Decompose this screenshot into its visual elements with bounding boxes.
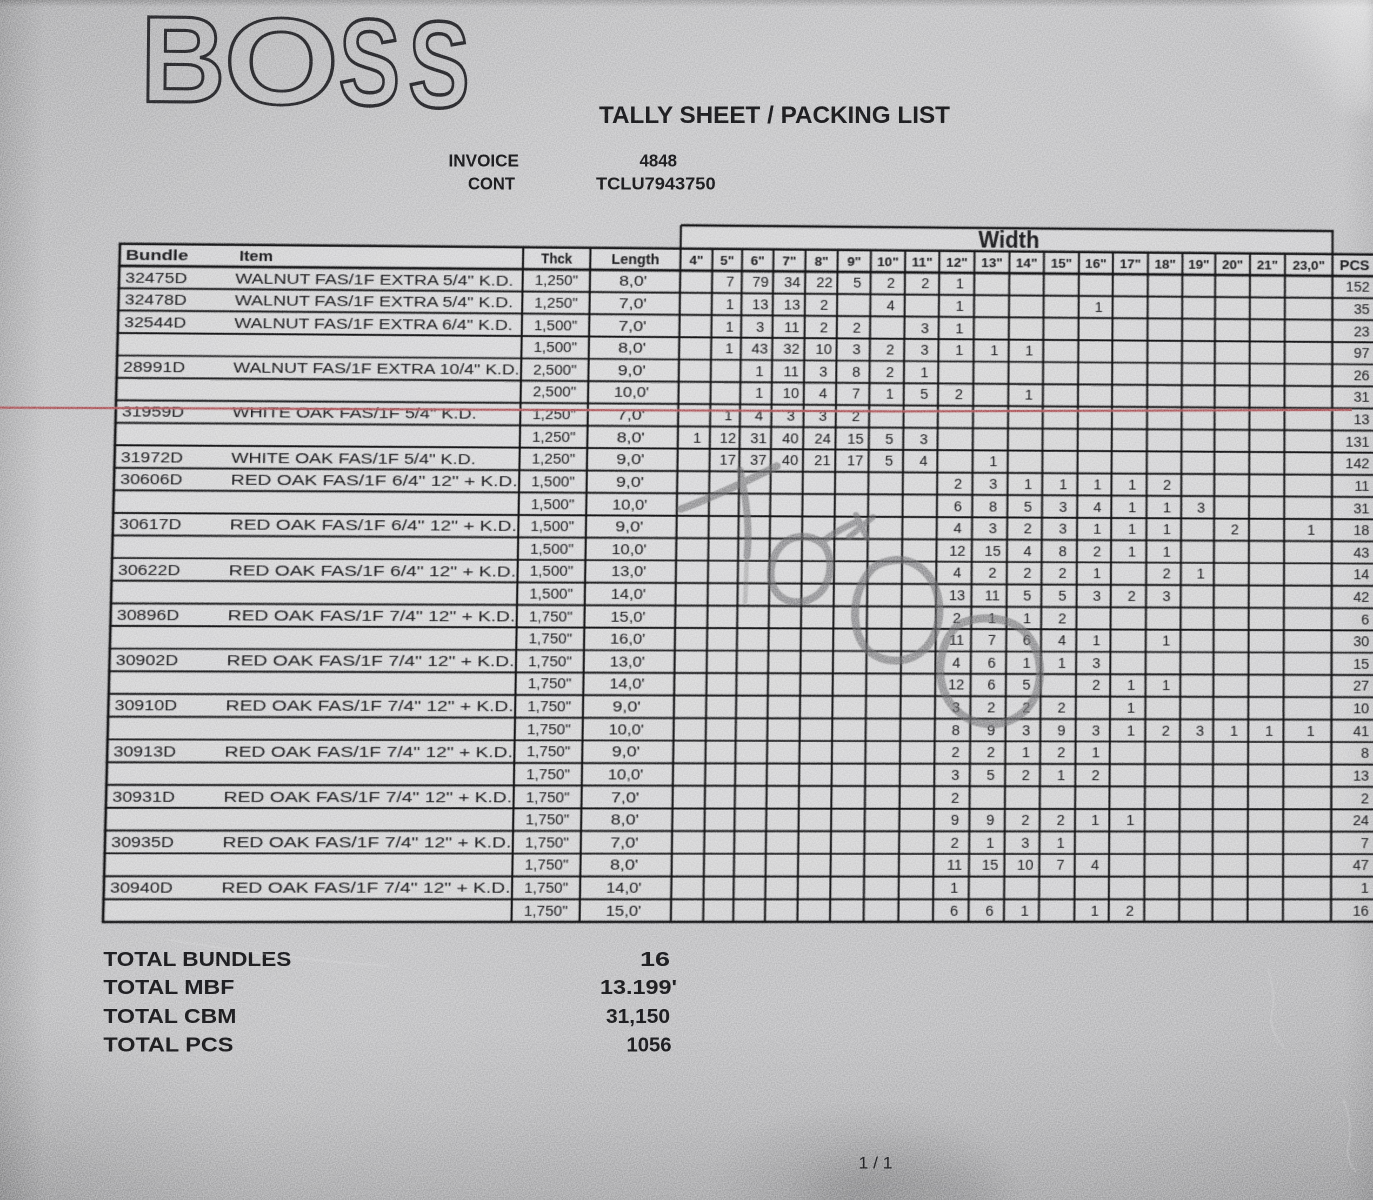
svg-text:10: 10 — [815, 342, 832, 358]
svg-text:17: 17 — [847, 454, 864, 470]
svg-text:2: 2 — [1126, 903, 1134, 919]
svg-text:24: 24 — [814, 431, 831, 447]
svg-text:TOTAL CBM: TOTAL CBM — [103, 1006, 236, 1028]
svg-text:2: 2 — [1058, 611, 1066, 627]
svg-text:7,0': 7,0' — [610, 835, 639, 851]
svg-text:30896D: 30896D — [117, 607, 180, 624]
svg-text:2,500": 2,500" — [533, 363, 577, 379]
svg-text:7,0': 7,0' — [618, 319, 646, 335]
svg-text:1: 1 — [1127, 678, 1135, 694]
svg-text:31: 31 — [1354, 390, 1370, 406]
svg-text:2: 2 — [1092, 678, 1100, 694]
svg-text:WHITE OAK FAS/1F 5/4" K.D.: WHITE OAK FAS/1F 5/4" K.D. — [232, 405, 477, 423]
svg-text:5: 5 — [987, 768, 995, 784]
svg-text:10,0': 10,0' — [608, 767, 644, 783]
svg-text:1,750": 1,750" — [527, 699, 571, 715]
svg-text:11: 11 — [947, 858, 962, 874]
svg-text:2: 2 — [1057, 813, 1065, 829]
svg-text:10,0': 10,0' — [612, 497, 648, 513]
svg-text:5: 5 — [1058, 589, 1066, 605]
svg-text:5: 5 — [885, 454, 893, 470]
svg-text:1,750": 1,750" — [525, 835, 569, 851]
svg-text:2: 2 — [1163, 478, 1171, 494]
svg-text:21: 21 — [814, 454, 831, 470]
svg-text:2: 2 — [1162, 723, 1170, 739]
svg-text:43: 43 — [1353, 546, 1369, 562]
svg-text:TOTAL PCS: TOTAL PCS — [103, 1034, 233, 1056]
svg-text:6: 6 — [985, 903, 993, 919]
svg-text:Bundle: Bundle — [126, 247, 189, 264]
svg-text:41: 41 — [1353, 724, 1369, 740]
svg-text:1: 1 — [755, 364, 763, 380]
svg-text:4: 4 — [1091, 858, 1099, 874]
svg-text:2: 2 — [1128, 589, 1136, 605]
svg-text:1,750": 1,750" — [526, 767, 570, 783]
svg-text:7: 7 — [1361, 836, 1369, 852]
svg-text:2: 2 — [1058, 566, 1066, 582]
svg-text:31: 31 — [1353, 501, 1369, 517]
svg-text:30910D: 30910D — [114, 697, 177, 714]
svg-text:10": 10" — [877, 254, 899, 269]
svg-text:3: 3 — [1196, 724, 1204, 740]
svg-text:4: 4 — [1093, 500, 1101, 516]
svg-text:7,0': 7,0' — [617, 408, 645, 424]
svg-text:5: 5 — [853, 276, 861, 292]
svg-text:8,0': 8,0' — [617, 430, 645, 446]
svg-text:2: 2 — [852, 409, 860, 425]
svg-text:1,250": 1,250" — [532, 407, 576, 423]
svg-text:8: 8 — [989, 499, 997, 515]
svg-text:3: 3 — [1092, 656, 1100, 672]
svg-text:31959D: 31959D — [122, 404, 185, 421]
svg-text:4: 4 — [887, 298, 895, 314]
svg-text:10: 10 — [1353, 701, 1369, 717]
svg-text:30940D: 30940D — [110, 880, 173, 897]
svg-text:4: 4 — [953, 521, 961, 537]
svg-text:Width: Width — [978, 227, 1039, 253]
svg-text:30902D: 30902D — [115, 652, 178, 669]
svg-text:32544D: 32544D — [124, 314, 186, 331]
svg-text:1: 1 — [725, 342, 733, 358]
svg-text:1: 1 — [1163, 545, 1171, 561]
svg-text:2: 2 — [1023, 566, 1031, 582]
svg-text:1,750": 1,750" — [524, 903, 568, 919]
svg-text:2: 2 — [953, 611, 961, 627]
svg-text:TALLY SHEET / PACKING LIST: TALLY SHEET / PACKING LIST — [599, 103, 951, 129]
svg-text:1: 1 — [1021, 903, 1029, 919]
svg-text:3: 3 — [920, 432, 928, 448]
svg-text:1: 1 — [1091, 813, 1099, 829]
svg-text:3: 3 — [852, 343, 860, 359]
svg-text:5: 5 — [885, 432, 893, 448]
svg-text:1: 1 — [1093, 522, 1101, 538]
svg-text:4: 4 — [952, 656, 960, 672]
svg-text:152: 152 — [1346, 280, 1370, 296]
svg-text:1,500": 1,500" — [530, 564, 574, 580]
svg-text:9: 9 — [951, 813, 959, 829]
svg-text:1: 1 — [1163, 500, 1171, 516]
svg-text:3: 3 — [786, 409, 794, 425]
svg-text:1: 1 — [1022, 746, 1030, 762]
svg-text:11: 11 — [1354, 479, 1369, 495]
svg-text:9: 9 — [987, 723, 995, 739]
svg-text:14,0': 14,0' — [611, 587, 647, 603]
svg-text:1: 1 — [1023, 611, 1031, 627]
svg-text:1: 1 — [1093, 567, 1101, 583]
svg-text:10: 10 — [1017, 858, 1034, 874]
svg-text:3: 3 — [1163, 589, 1171, 605]
svg-text:18": 18" — [1155, 257, 1176, 272]
svg-text:1: 1 — [1361, 881, 1369, 897]
svg-text:4848: 4848 — [640, 151, 678, 171]
svg-text:5: 5 — [1022, 678, 1030, 694]
svg-text:TOTAL BUNDLES: TOTAL BUNDLES — [103, 949, 291, 971]
svg-text:22: 22 — [816, 276, 833, 292]
svg-text:TCLU7943750: TCLU7943750 — [596, 173, 716, 193]
svg-text:5": 5" — [720, 253, 734, 268]
svg-text:23,0": 23,0" — [1293, 258, 1325, 273]
svg-text:30931D: 30931D — [112, 789, 175, 806]
svg-text:1: 1 — [1128, 478, 1136, 494]
svg-text:97: 97 — [1354, 346, 1370, 362]
svg-text:1: 1 — [986, 836, 994, 852]
svg-text:2: 2 — [886, 365, 894, 381]
svg-text:1,500": 1,500" — [533, 340, 577, 356]
svg-text:1: 1 — [1162, 679, 1170, 695]
svg-text:1,750": 1,750" — [525, 813, 569, 829]
svg-text:17: 17 — [719, 453, 736, 469]
svg-text:24: 24 — [1353, 813, 1369, 829]
svg-text:8": 8" — [814, 254, 828, 269]
svg-text:31: 31 — [750, 431, 767, 447]
svg-text:4: 4 — [1058, 634, 1066, 650]
svg-text:Thck: Thck — [541, 251, 573, 268]
svg-text:O: O — [223, 0, 340, 131]
svg-text:15,0': 15,0' — [610, 609, 646, 625]
svg-text:1,500": 1,500" — [529, 587, 573, 603]
svg-text:2: 2 — [1022, 701, 1030, 717]
svg-text:3: 3 — [951, 768, 959, 784]
svg-text:1: 1 — [1059, 477, 1067, 493]
svg-text:8,0': 8,0' — [618, 341, 646, 357]
svg-text:1: 1 — [920, 365, 928, 381]
svg-text:13,0': 13,0' — [610, 654, 646, 670]
svg-text:1,750": 1,750" — [526, 790, 570, 806]
svg-text:3: 3 — [1197, 500, 1205, 516]
svg-text:26: 26 — [1354, 368, 1370, 384]
svg-text:6: 6 — [950, 903, 958, 919]
svg-text:1056: 1056 — [627, 1034, 672, 1056]
svg-text:7,0': 7,0' — [619, 296, 647, 312]
svg-text:16": 16" — [1085, 256, 1106, 271]
svg-text:28991D: 28991D — [123, 359, 186, 376]
svg-text:3: 3 — [1022, 723, 1030, 739]
svg-text:8,0': 8,0' — [611, 813, 640, 829]
svg-text:2: 2 — [1163, 567, 1171, 583]
svg-text:5: 5 — [1023, 589, 1031, 605]
svg-text:11: 11 — [784, 320, 799, 336]
svg-text:4: 4 — [755, 409, 763, 425]
svg-text:4: 4 — [919, 454, 927, 470]
svg-text:34: 34 — [784, 276, 801, 292]
svg-text:27: 27 — [1353, 679, 1369, 695]
svg-text:1,500": 1,500" — [534, 318, 578, 334]
svg-text:2: 2 — [820, 320, 828, 336]
svg-text:2: 2 — [988, 566, 996, 582]
svg-text:15: 15 — [982, 858, 999, 874]
svg-text:13,0': 13,0' — [611, 564, 647, 580]
svg-text:32475D: 32475D — [125, 269, 187, 286]
svg-text:12": 12" — [946, 255, 968, 270]
svg-text:16,0': 16,0' — [610, 632, 646, 648]
svg-text:6: 6 — [988, 656, 996, 672]
svg-text:3: 3 — [1059, 522, 1067, 538]
svg-text:2: 2 — [1057, 701, 1065, 717]
svg-text:RED OAK FAS/1F 6/4" 12" + K.D.: RED OAK FAS/1F 6/4" 12" + K.D. — [229, 562, 517, 580]
svg-text:7: 7 — [726, 275, 734, 291]
svg-text:15: 15 — [847, 432, 864, 448]
svg-text:1,500": 1,500" — [531, 474, 575, 490]
svg-text:1,750": 1,750" — [529, 609, 573, 625]
svg-text:1: 1 — [1025, 388, 1033, 404]
svg-text:7: 7 — [988, 633, 996, 649]
svg-text:7: 7 — [1056, 858, 1064, 874]
svg-text:79: 79 — [752, 275, 769, 291]
svg-text:47: 47 — [1353, 858, 1369, 874]
svg-text:1 / 1: 1 / 1 — [859, 1154, 893, 1172]
svg-text:11: 11 — [949, 633, 964, 649]
svg-text:37: 37 — [750, 453, 767, 469]
svg-text:30913D: 30913D — [113, 743, 176, 760]
svg-text:23: 23 — [1354, 324, 1370, 340]
svg-text:2: 2 — [1092, 768, 1100, 784]
svg-text:7: 7 — [852, 387, 860, 403]
svg-text:1: 1 — [1230, 724, 1238, 740]
svg-text:4: 4 — [1023, 544, 1031, 560]
svg-text:TOTAL MBF: TOTAL MBF — [103, 977, 234, 999]
svg-text:1,250": 1,250" — [532, 430, 576, 446]
svg-text:6: 6 — [1023, 633, 1031, 649]
svg-text:15": 15" — [1051, 256, 1072, 271]
svg-text:2: 2 — [987, 701, 995, 717]
svg-text:30935D: 30935D — [111, 834, 174, 851]
svg-text:1: 1 — [886, 387, 894, 403]
svg-text:15: 15 — [984, 544, 1000, 560]
svg-text:1: 1 — [755, 386, 763, 402]
svg-text:1: 1 — [726, 297, 734, 313]
svg-text:16: 16 — [640, 949, 670, 971]
svg-text:2: 2 — [1021, 813, 1029, 829]
svg-text:2: 2 — [886, 343, 894, 359]
svg-text:3: 3 — [1093, 589, 1101, 605]
svg-text:30617D: 30617D — [119, 516, 182, 533]
svg-text:1: 1 — [1307, 724, 1315, 740]
svg-text:1: 1 — [1127, 723, 1135, 739]
svg-text:1: 1 — [956, 299, 964, 315]
svg-text:1: 1 — [1023, 656, 1031, 672]
svg-text:32: 32 — [783, 342, 800, 358]
svg-text:1,250": 1,250" — [532, 452, 576, 468]
svg-text:1: 1 — [1058, 656, 1066, 672]
svg-text:RED OAK FAS/1F 6/4" 12" + K.D.: RED OAK FAS/1F 6/4" 12" + K.D. — [230, 517, 517, 535]
svg-text:2: 2 — [820, 298, 828, 314]
svg-text:7,0': 7,0' — [611, 790, 640, 806]
svg-text:1: 1 — [1025, 344, 1033, 360]
svg-text:INVOICE: INVOICE — [449, 151, 520, 171]
svg-text:2: 2 — [987, 746, 995, 762]
svg-text:12: 12 — [949, 544, 965, 560]
svg-text:3: 3 — [952, 700, 960, 716]
svg-text:15: 15 — [1353, 657, 1369, 673]
svg-text:1,750": 1,750" — [528, 632, 572, 648]
svg-text:12: 12 — [720, 431, 737, 447]
svg-text:17": 17" — [1120, 257, 1141, 272]
svg-text:4: 4 — [819, 387, 827, 403]
svg-text:4": 4" — [689, 253, 703, 268]
svg-text:15,0': 15,0' — [606, 903, 642, 919]
svg-text:8: 8 — [952, 723, 960, 739]
svg-text:2: 2 — [1022, 768, 1030, 784]
svg-text:2: 2 — [1093, 544, 1101, 560]
svg-text:9,0': 9,0' — [612, 700, 641, 716]
svg-text:2: 2 — [1057, 746, 1065, 762]
svg-text:40: 40 — [782, 431, 799, 447]
svg-text:7": 7" — [782, 254, 796, 269]
svg-text:Length: Length — [611, 252, 659, 269]
svg-text:6": 6" — [751, 253, 765, 268]
svg-text:32478D: 32478D — [124, 292, 186, 309]
svg-text:3: 3 — [920, 343, 928, 359]
svg-text:1,500": 1,500" — [531, 497, 575, 513]
svg-text:1: 1 — [1091, 903, 1099, 919]
svg-text:1,750": 1,750" — [528, 677, 572, 693]
svg-text:1: 1 — [1128, 522, 1136, 538]
svg-text:3: 3 — [819, 409, 827, 425]
svg-text:1,250": 1,250" — [535, 273, 578, 289]
svg-text:1: 1 — [1024, 477, 1032, 493]
svg-text:2: 2 — [954, 477, 962, 493]
svg-text:131: 131 — [1345, 435, 1369, 451]
svg-text:1: 1 — [989, 455, 997, 471]
svg-text:1: 1 — [1056, 836, 1064, 852]
svg-text:30: 30 — [1353, 635, 1369, 651]
svg-text:10,0': 10,0' — [614, 385, 649, 401]
svg-text:2: 2 — [887, 276, 895, 292]
svg-text:3: 3 — [1021, 836, 1029, 852]
svg-text:2: 2 — [1361, 791, 1369, 807]
svg-text:RED OAK FAS/1F 7/4" 12" + K.D.: RED OAK FAS/1F 7/4" 12" + K.D. — [223, 789, 512, 807]
svg-text:1: 1 — [724, 408, 732, 424]
svg-text:11": 11" — [912, 255, 933, 270]
svg-text:3: 3 — [1092, 723, 1100, 739]
svg-text:13: 13 — [752, 297, 769, 313]
svg-text:9: 9 — [986, 813, 994, 829]
svg-text:42: 42 — [1353, 590, 1369, 606]
svg-text:2: 2 — [853, 320, 861, 336]
svg-text:11: 11 — [985, 589, 1000, 605]
svg-text:1,500": 1,500" — [530, 519, 574, 535]
svg-text:1: 1 — [1197, 567, 1205, 583]
svg-text:3: 3 — [819, 365, 827, 381]
svg-text:13: 13 — [784, 298, 801, 314]
svg-text:5: 5 — [1024, 499, 1032, 515]
svg-text:19": 19" — [1188, 257, 1209, 272]
svg-text:1,750": 1,750" — [528, 654, 572, 670]
svg-text:30622D: 30622D — [118, 562, 181, 579]
svg-text:9,0': 9,0' — [616, 475, 644, 491]
svg-text:8: 8 — [1059, 544, 1067, 560]
svg-text:B: B — [140, 0, 226, 129]
svg-text:10,0': 10,0' — [611, 542, 647, 558]
svg-text:RED OAK FAS/1F 7/4" 12" + K.D.: RED OAK FAS/1F 7/4" 12" + K.D. — [222, 834, 511, 851]
svg-text:14,0': 14,0' — [606, 881, 642, 897]
svg-text:14,0': 14,0' — [609, 677, 645, 693]
svg-text:3: 3 — [921, 321, 929, 337]
svg-text:CONT: CONT — [468, 173, 515, 193]
svg-text:WALNUT FAS/1F EXTRA 5/4" K.D.: WALNUT FAS/1F EXTRA 5/4" K.D. — [235, 293, 514, 312]
svg-text:1,750": 1,750" — [527, 722, 571, 738]
svg-text:12: 12 — [948, 678, 965, 694]
svg-text:3: 3 — [1059, 500, 1067, 516]
svg-text:2: 2 — [921, 277, 929, 293]
svg-text:PCS: PCS — [1340, 258, 1370, 274]
svg-text:2: 2 — [951, 745, 959, 761]
svg-text:2: 2 — [1231, 523, 1239, 539]
svg-text:13": 13" — [981, 255, 1003, 270]
svg-text:14: 14 — [1353, 568, 1369, 584]
svg-text:1: 1 — [1162, 634, 1170, 650]
svg-text:8,0': 8,0' — [619, 274, 647, 290]
svg-text:1: 1 — [988, 611, 996, 627]
svg-text:1: 1 — [1092, 634, 1100, 650]
svg-text:1: 1 — [1057, 768, 1065, 784]
svg-text:20": 20" — [1222, 257, 1243, 272]
svg-text:1: 1 — [1092, 746, 1100, 762]
svg-text:1: 1 — [1126, 813, 1134, 829]
svg-text:1: 1 — [1307, 523, 1315, 539]
svg-text:2: 2 — [951, 790, 959, 806]
svg-text:3: 3 — [756, 320, 764, 336]
svg-text:3: 3 — [989, 521, 997, 537]
svg-text:RED OAK FAS/1F 7/4" 12" + K.D.: RED OAK FAS/1F 7/4" 12" + K.D. — [224, 743, 513, 761]
svg-text:9": 9" — [847, 254, 861, 269]
svg-text:13: 13 — [1353, 769, 1369, 785]
svg-text:6: 6 — [1361, 612, 1369, 628]
svg-text:13.199': 13.199' — [600, 977, 677, 999]
svg-text:1: 1 — [1128, 500, 1136, 516]
svg-text:1: 1 — [955, 343, 963, 359]
svg-text:1: 1 — [956, 277, 964, 293]
svg-text:1,750": 1,750" — [525, 858, 569, 874]
svg-text:11: 11 — [784, 364, 799, 380]
svg-text:1: 1 — [950, 881, 958, 897]
svg-text:RED OAK FAS/1F 7/4" 12" + K.D.: RED OAK FAS/1F 7/4" 12" + K.D. — [226, 652, 514, 670]
svg-text:9,0': 9,0' — [618, 363, 646, 379]
svg-text:1,750": 1,750" — [526, 745, 570, 761]
svg-text:2,500": 2,500" — [533, 385, 577, 401]
svg-text:RED OAK FAS/1F 6/4" 12" + K.D.: RED OAK FAS/1F 6/4" 12" + K.D. — [231, 472, 518, 490]
svg-text:9,0': 9,0' — [612, 745, 641, 761]
svg-text:10: 10 — [783, 387, 800, 403]
svg-text:13: 13 — [949, 588, 966, 604]
svg-text:1: 1 — [990, 344, 998, 360]
svg-text:16: 16 — [1353, 903, 1369, 919]
svg-text:5: 5 — [920, 388, 928, 404]
svg-text:14": 14" — [1016, 256, 1038, 271]
svg-text:2: 2 — [1024, 522, 1032, 538]
svg-text:1,500": 1,500" — [530, 542, 574, 558]
svg-text:21": 21" — [1257, 258, 1278, 273]
